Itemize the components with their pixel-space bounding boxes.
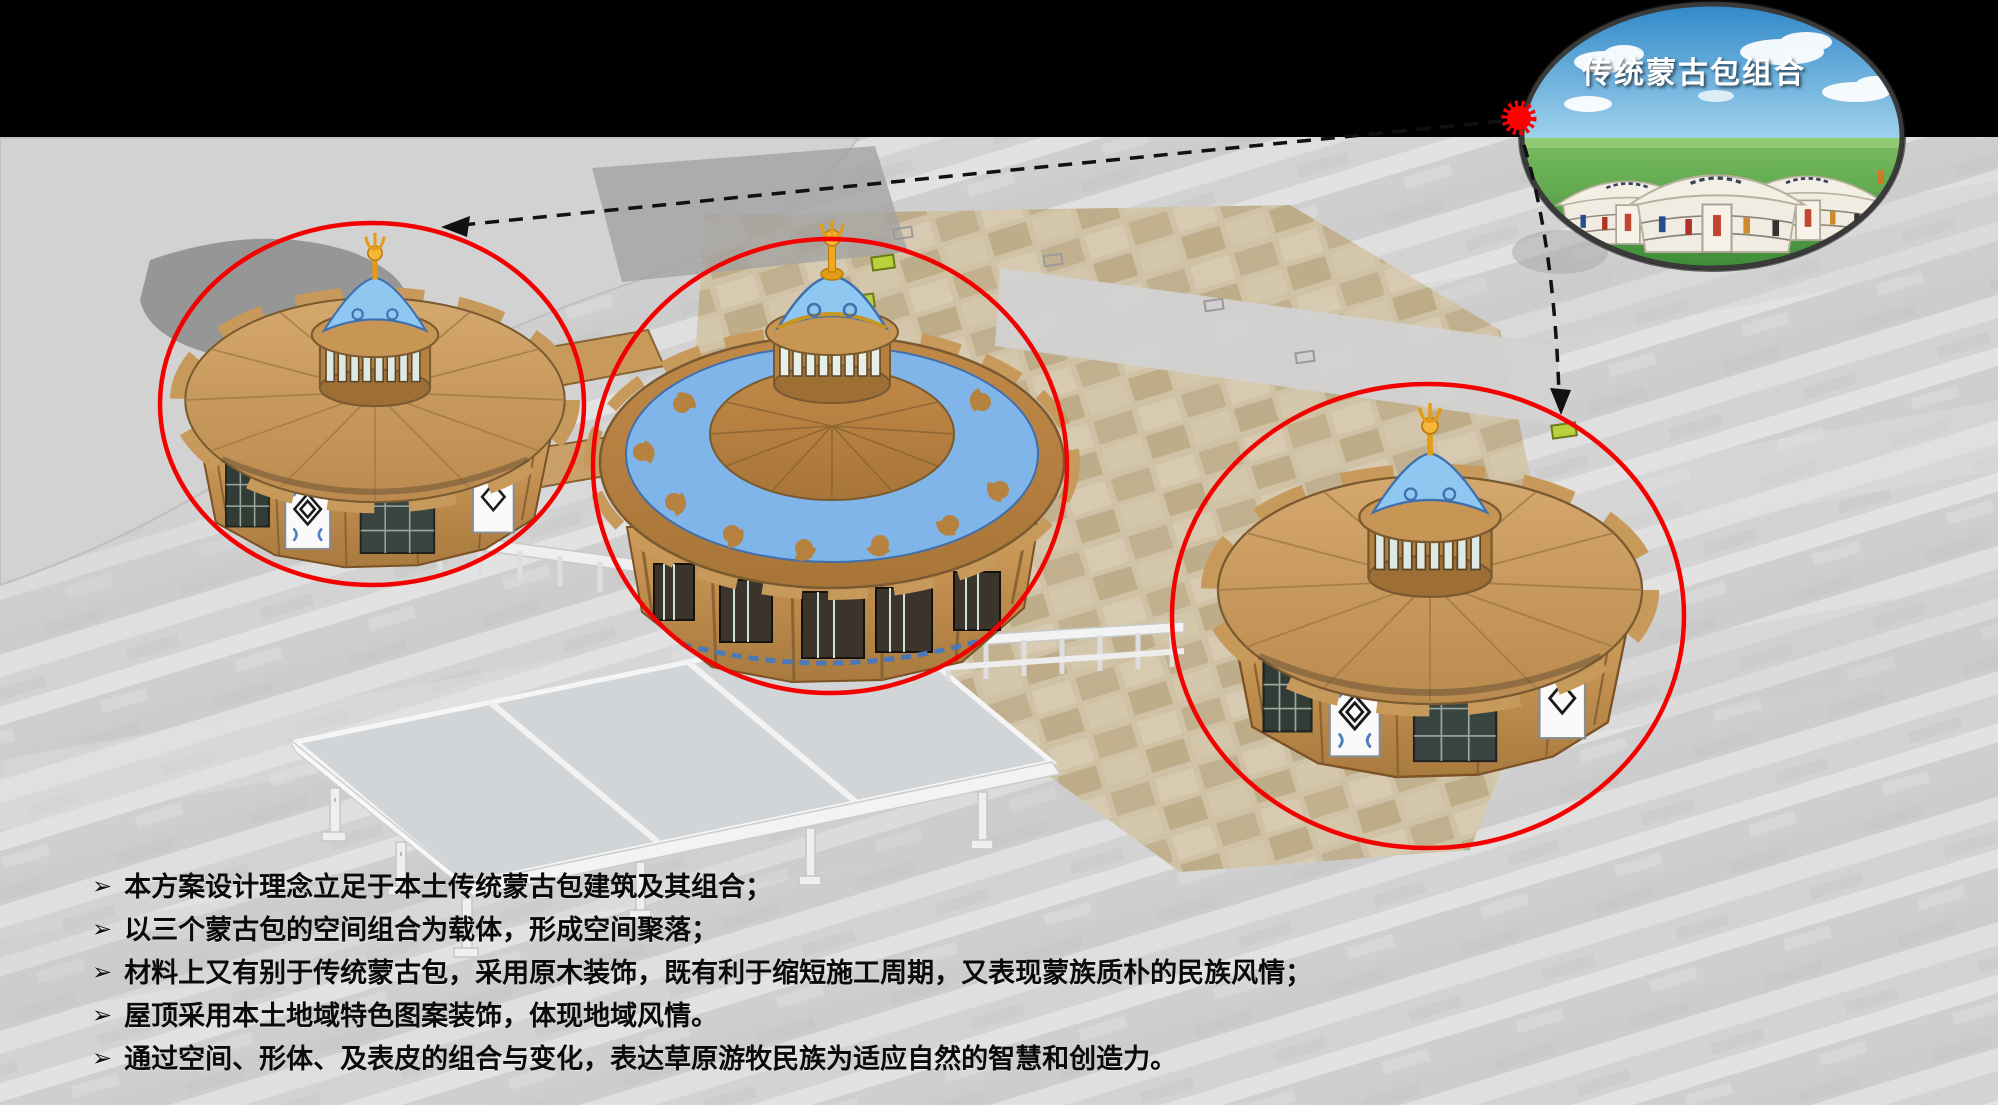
note-item: ➢ 本方案设计理念立足于本土传统蒙古包建筑及其组合； — [92, 866, 1312, 909]
note-text: 通过空间、形体、及表皮的组合与变化，表达草原游牧民族为适应自然的智慧和创造力。 — [124, 1038, 1177, 1081]
note-text: 屋顶采用本土地域特色图案装饰，体现地域风情。 — [124, 995, 718, 1038]
note-item: ➢ 材料上又有别于传统蒙古包，采用原木装饰，既有利于缩短施工周期，又表现蒙族质朴… — [92, 952, 1312, 995]
bullet-icon: ➢ — [92, 865, 112, 908]
bullet-icon: ➢ — [92, 994, 112, 1037]
note-text: 材料上又有别于传统蒙古包，采用原木装饰，既有利于缩短施工周期，又表现蒙族质朴的民… — [124, 952, 1312, 995]
bullet-icon: ➢ — [92, 908, 112, 951]
bullet-icon: ➢ — [92, 951, 112, 994]
inset-caption: 传统蒙古包组合 — [1582, 48, 1862, 92]
design-notes: ➢ 本方案设计理念立足于本土传统蒙古包建筑及其组合； ➢ 以三个蒙古包的空间组合… — [92, 866, 1312, 1081]
note-item: ➢ 以三个蒙古包的空间组合为载体，形成空间聚落； — [92, 909, 1312, 952]
presentation-slide: 传统蒙古包组合 ➢ 本方案设计理念立足于本土传统蒙古包建筑及其组合； ➢ 以三个… — [0, 0, 1998, 1105]
note-item: ➢ 屋顶采用本土地域特色图案装饰，体现地域风情。 — [92, 995, 1312, 1038]
bullet-icon: ➢ — [92, 1037, 112, 1080]
note-text: 以三个蒙古包的空间组合为载体，形成空间聚落； — [124, 909, 718, 952]
note-item: ➢ 通过空间、形体、及表皮的组合与变化，表达草原游牧民族为适应自然的智慧和创造力… — [92, 1038, 1312, 1081]
note-text: 本方案设计理念立足于本土传统蒙古包建筑及其组合； — [124, 866, 772, 909]
